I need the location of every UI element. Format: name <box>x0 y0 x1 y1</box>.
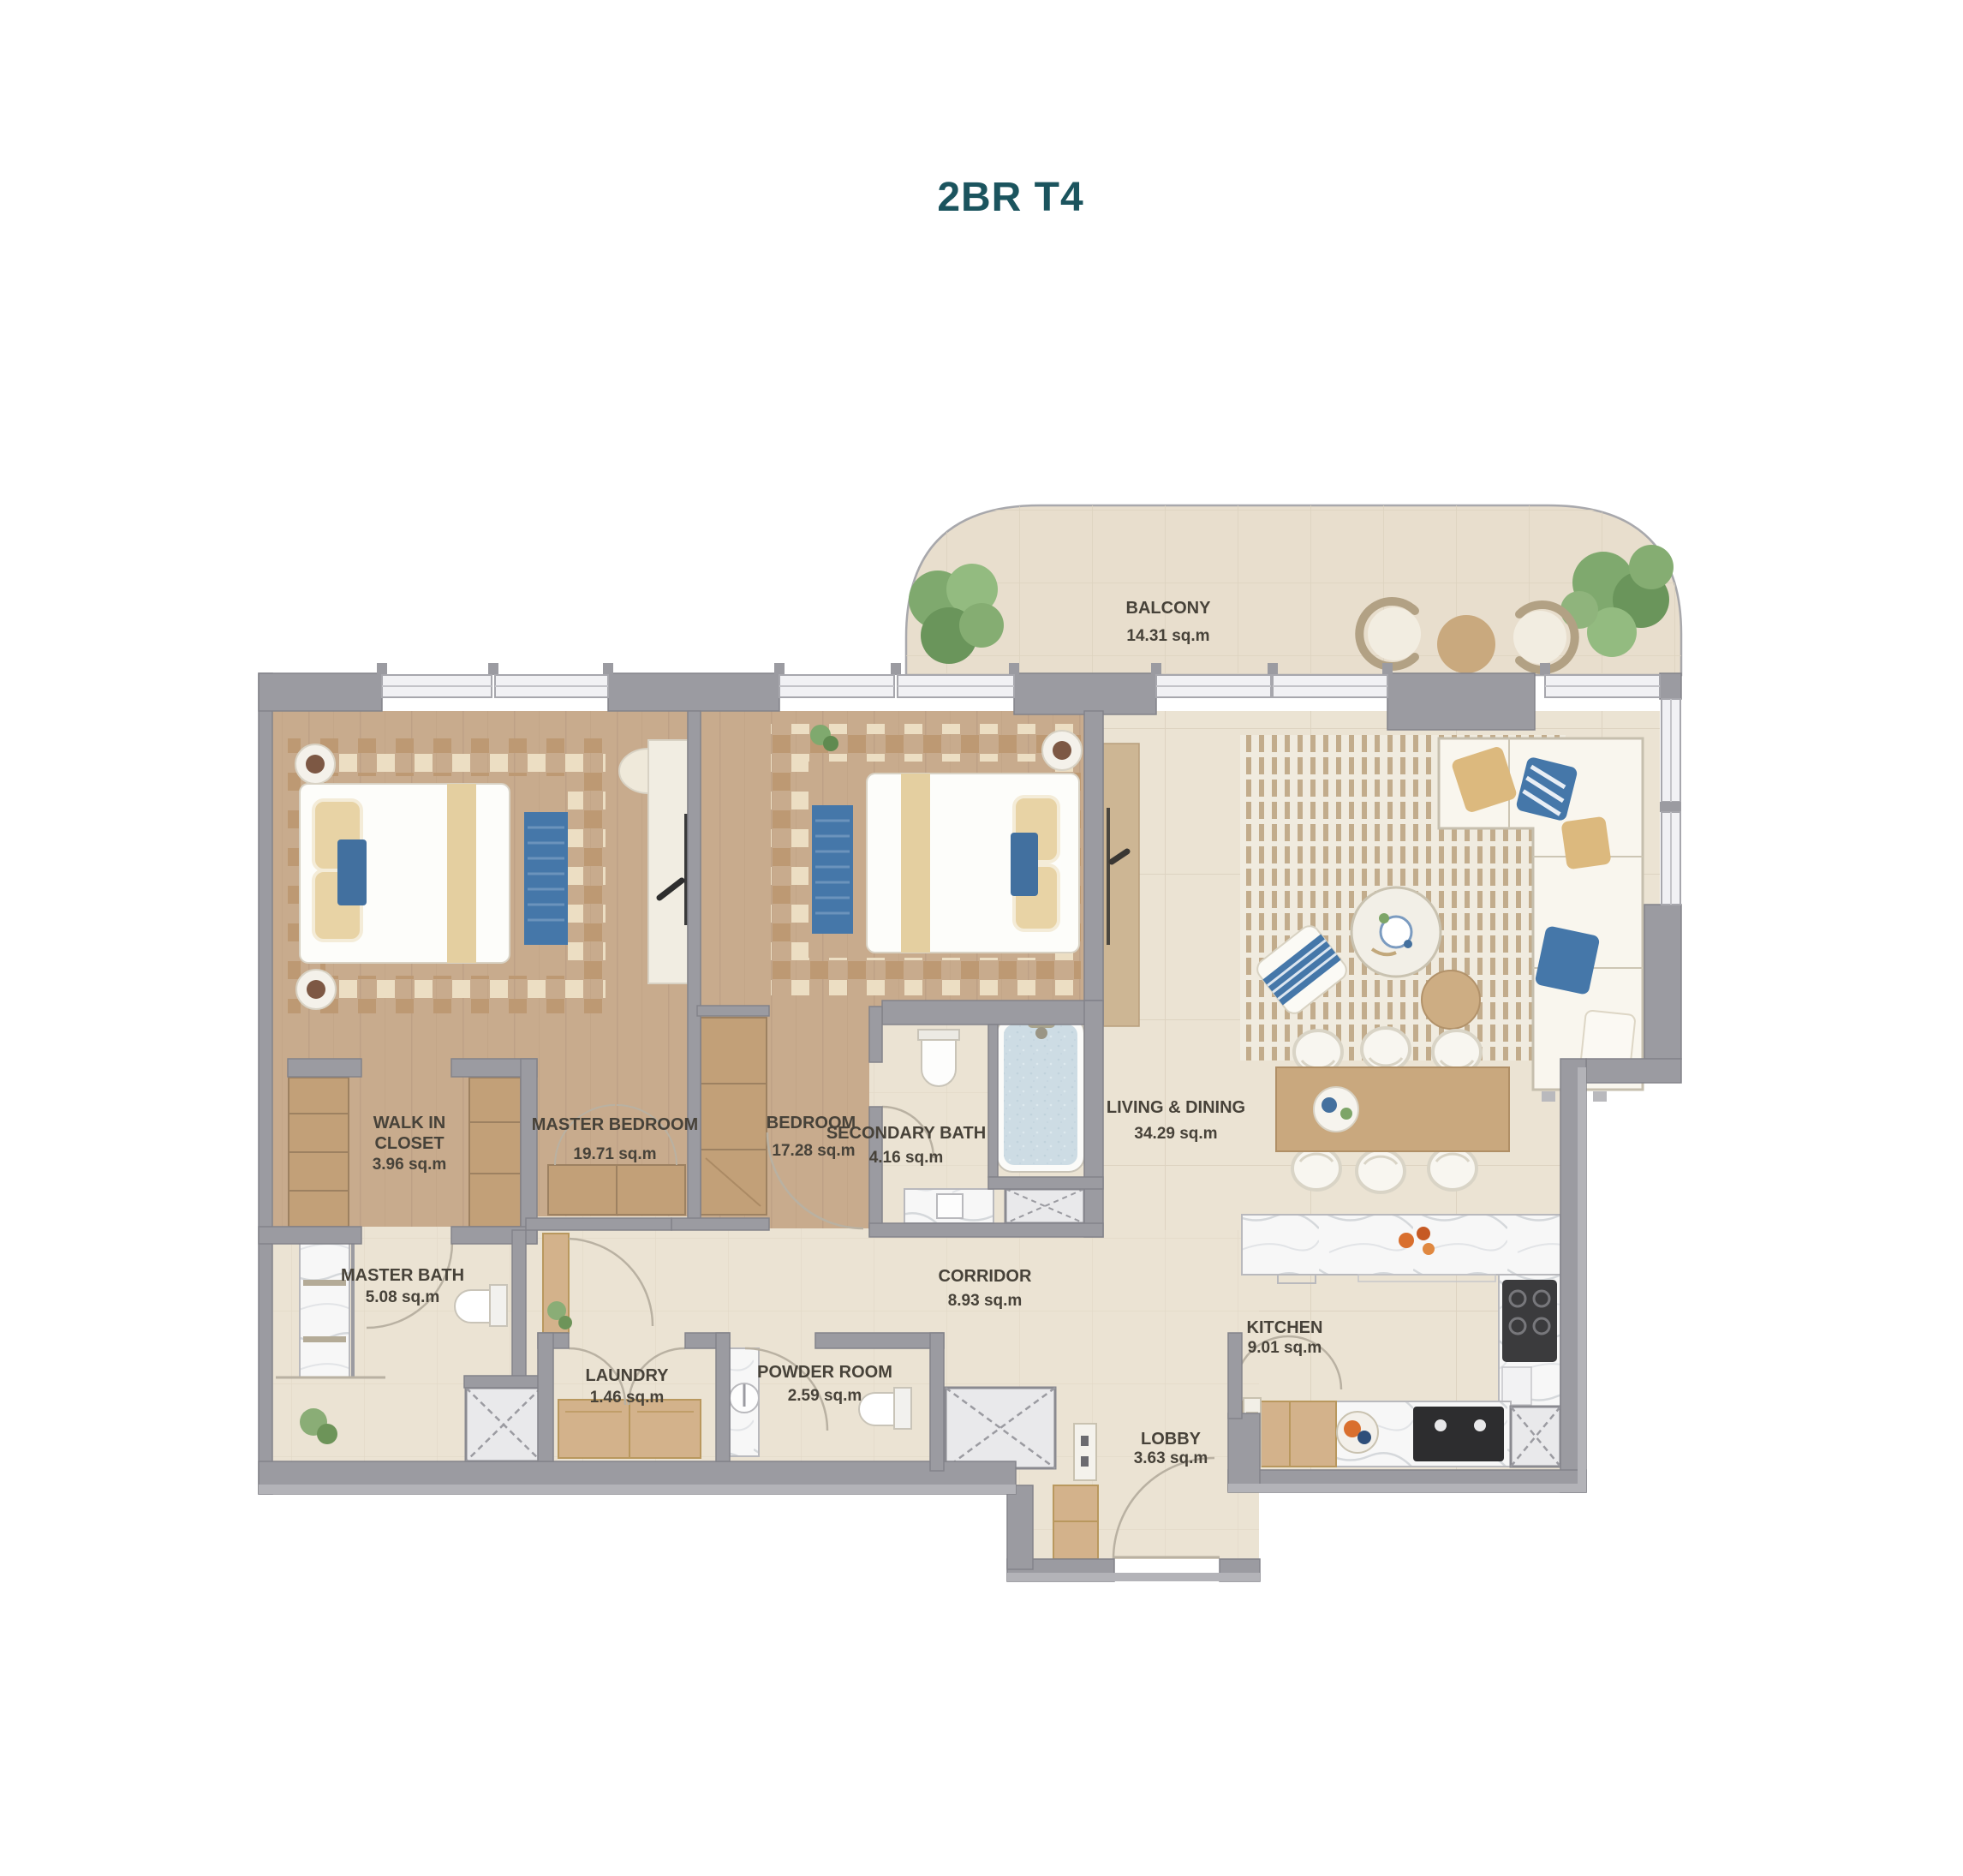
svg-text:MASTER BEDROOM: MASTER BEDROOM <box>532 1115 698 1134</box>
svg-text:KITCHEN: KITCHEN <box>1247 1318 1323 1337</box>
svg-text:14.31 sq.m: 14.31 sq.m <box>1126 627 1209 645</box>
svg-text:WALK IN: WALK IN <box>373 1114 445 1132</box>
svg-text:19.71 sq.m: 19.71 sq.m <box>573 1145 656 1163</box>
svg-text:5.08 sq.m: 5.08 sq.m <box>366 1288 440 1306</box>
svg-text:CORRIDOR: CORRIDOR <box>939 1267 1032 1286</box>
svg-text:3.96 sq.m: 3.96 sq.m <box>373 1156 447 1174</box>
svg-text:1.46 sq.m: 1.46 sq.m <box>590 1389 665 1407</box>
svg-text:17.28 sq.m: 17.28 sq.m <box>772 1142 855 1160</box>
svg-text:9.01 sq.m: 9.01 sq.m <box>1248 1339 1322 1357</box>
svg-text:LAUNDRY: LAUNDRY <box>585 1366 669 1385</box>
svg-text:BALCONY: BALCONY <box>1126 599 1212 618</box>
svg-text:LOBBY: LOBBY <box>1141 1430 1202 1449</box>
svg-text:34.29 sq.m: 34.29 sq.m <box>1134 1125 1217 1143</box>
svg-text:2BR T4: 2BR T4 <box>937 175 1083 220</box>
svg-text:MASTER BATH: MASTER BATH <box>341 1266 464 1285</box>
svg-text:2.59 sq.m: 2.59 sq.m <box>788 1387 862 1405</box>
svg-text:3.63 sq.m: 3.63 sq.m <box>1134 1449 1208 1467</box>
svg-text:CLOSET: CLOSET <box>374 1134 444 1153</box>
svg-text:POWDER ROOM: POWDER ROOM <box>757 1363 892 1382</box>
svg-text:8.93 sq.m: 8.93 sq.m <box>948 1292 1023 1310</box>
svg-text:4.16 sq.m: 4.16 sq.m <box>869 1149 944 1167</box>
svg-text:SECONDARY BATH: SECONDARY BATH <box>826 1124 986 1143</box>
svg-text:LIVING & DINING: LIVING & DINING <box>1107 1098 1245 1117</box>
